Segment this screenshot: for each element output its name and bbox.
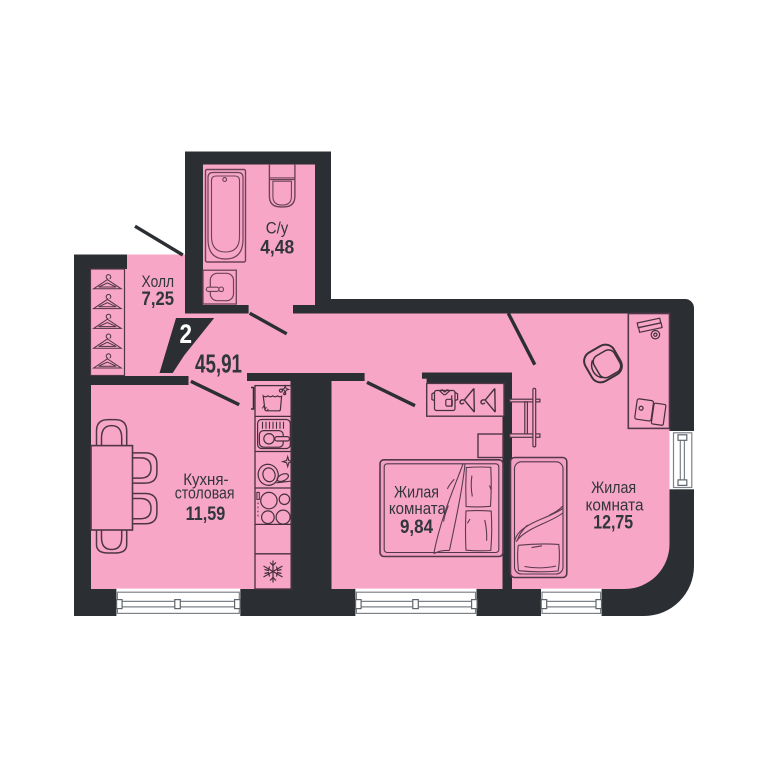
svg-text:Жилая: Жилая bbox=[394, 483, 439, 501]
svg-text:Жилая: Жилая bbox=[591, 479, 636, 497]
svg-text:11,59: 11,59 bbox=[186, 504, 226, 525]
svg-text:4,48: 4,48 bbox=[260, 237, 294, 258]
svg-text:С/у: С/у bbox=[266, 219, 289, 237]
svg-text:12,75: 12,75 bbox=[593, 513, 633, 534]
svg-text:7,25: 7,25 bbox=[142, 289, 175, 310]
svg-text:столовая: столовая bbox=[175, 485, 235, 503]
svg-text:2: 2 bbox=[180, 319, 193, 349]
svg-text:9,84: 9,84 bbox=[400, 517, 433, 538]
svg-text:комната: комната bbox=[389, 500, 446, 518]
svg-text:45,91: 45,91 bbox=[195, 349, 242, 379]
